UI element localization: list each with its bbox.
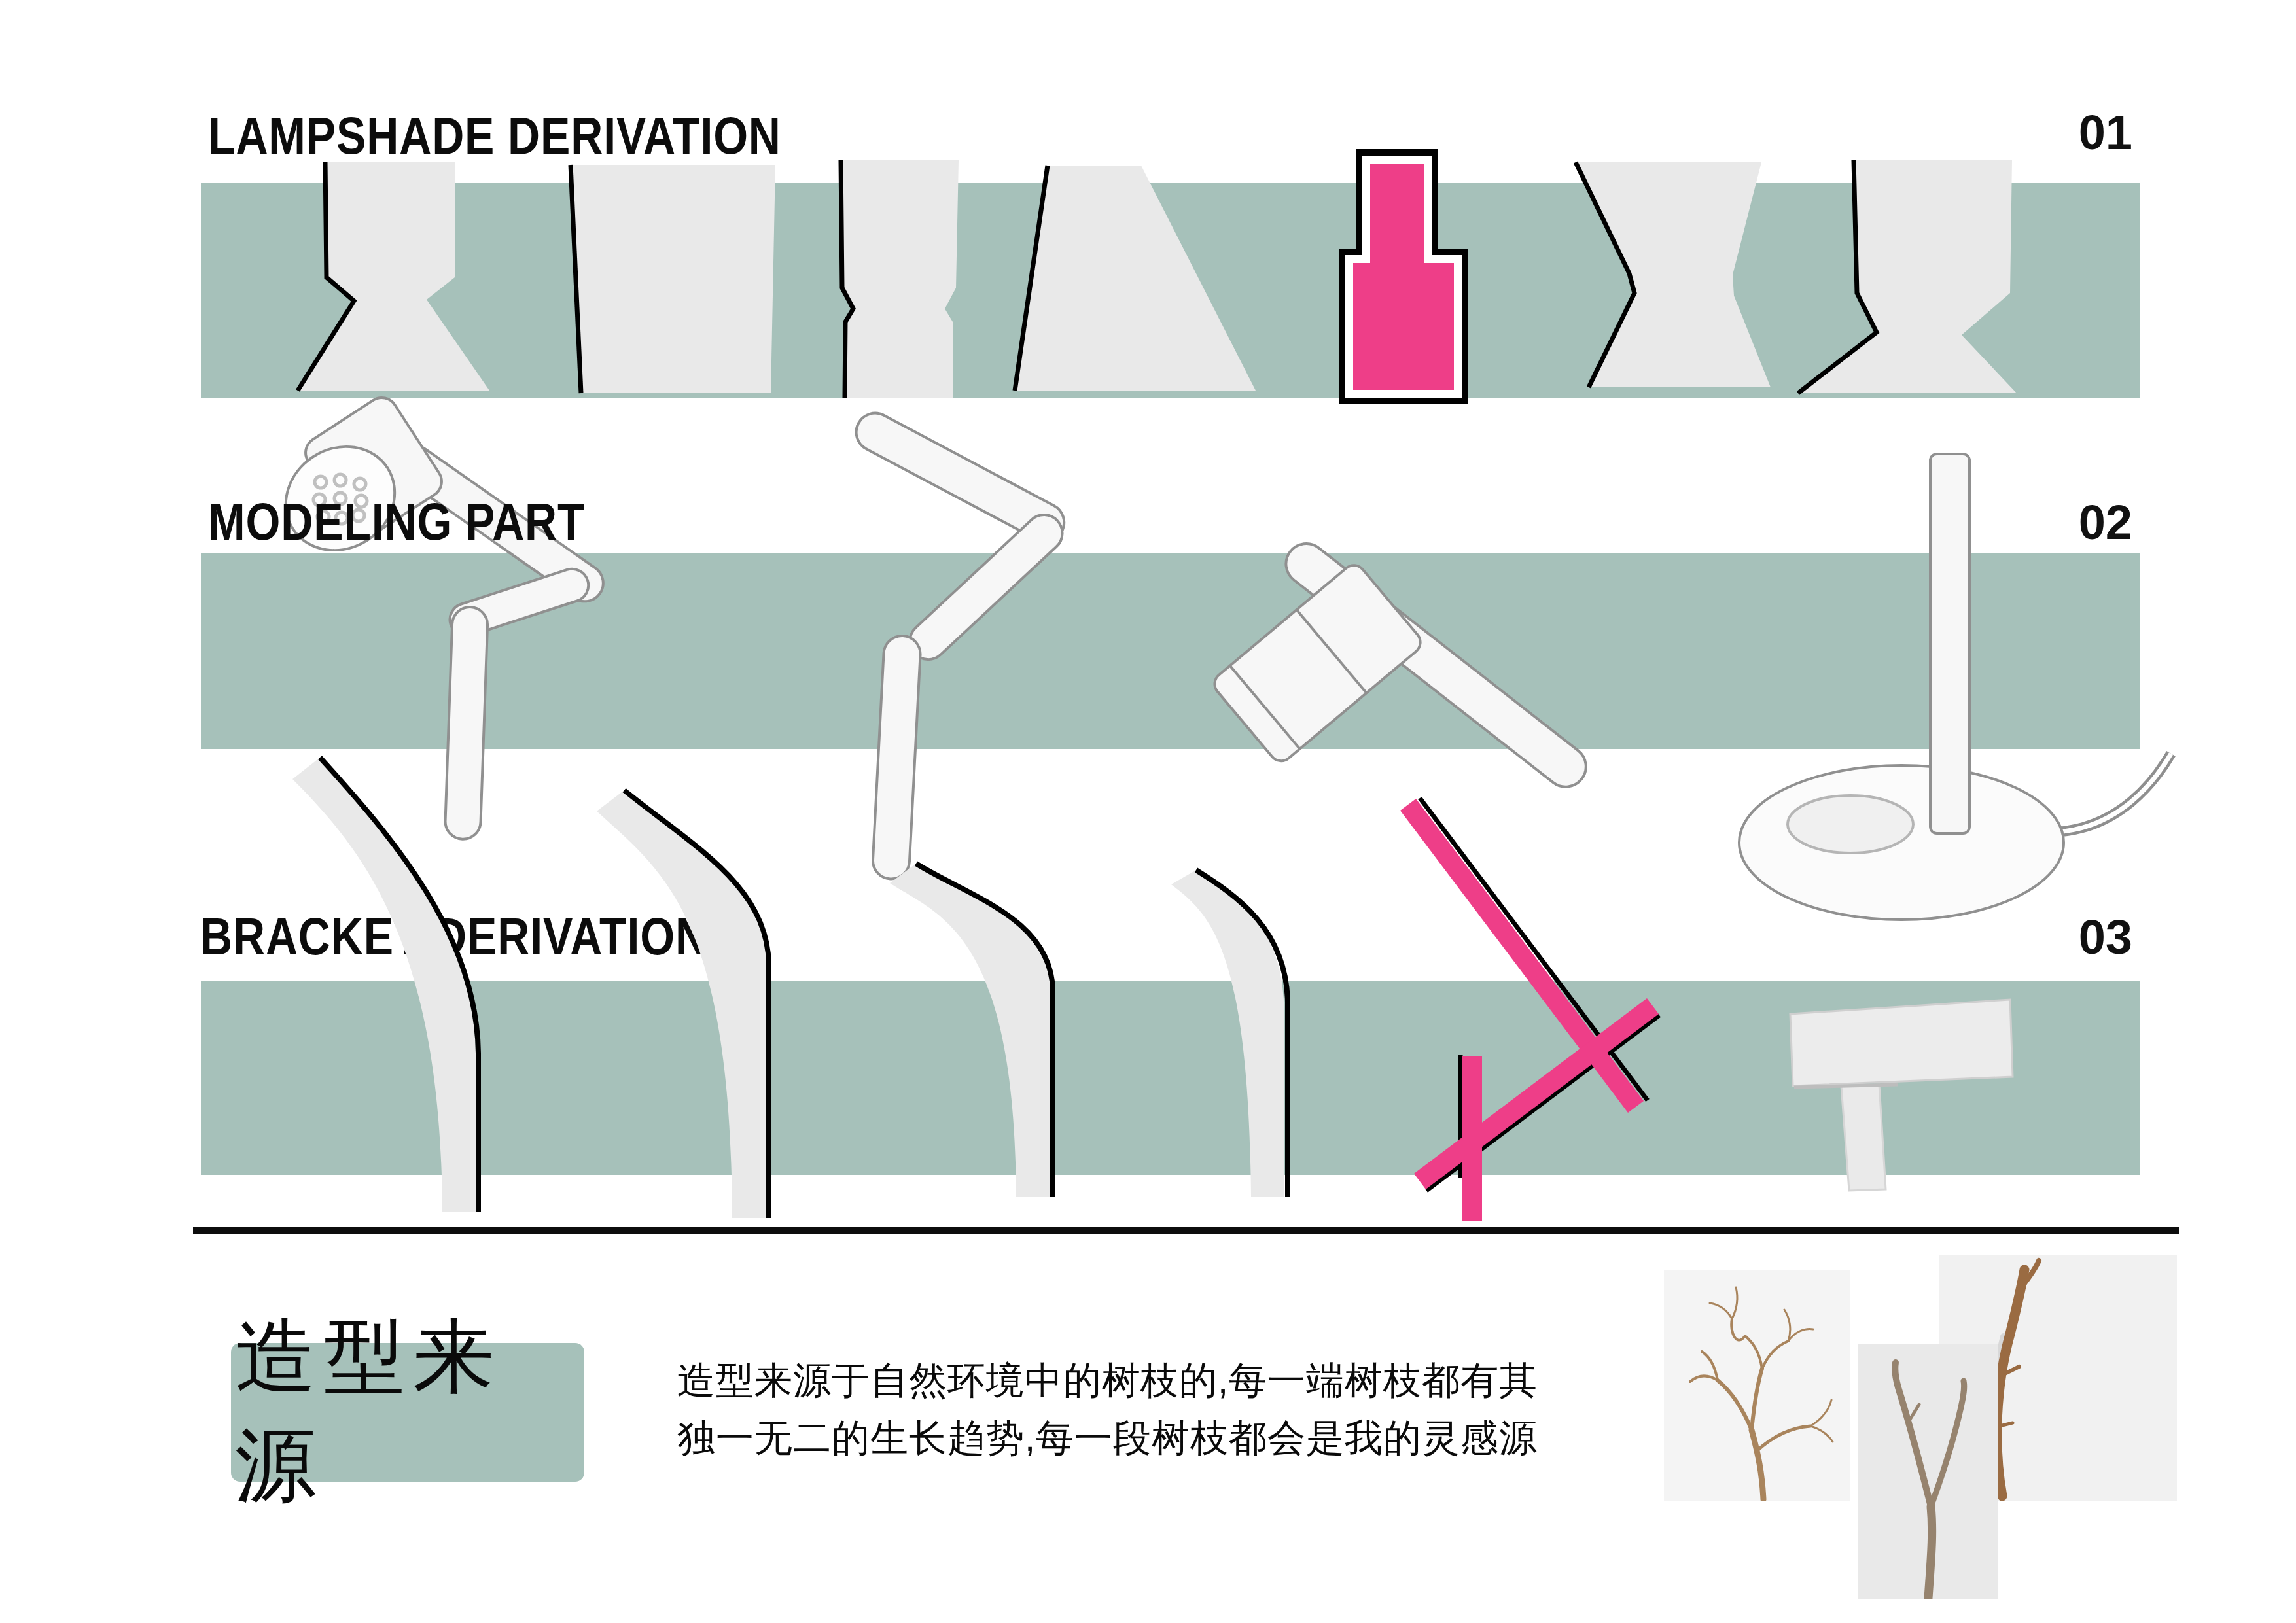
bracket-hook-curve — [597, 790, 769, 1218]
bracket-t-shape — [1790, 1000, 2013, 1191]
bracket-gentle-curve — [1171, 870, 1288, 1197]
bracket-large-curve — [292, 758, 478, 1212]
bracket-highlighted-pink-cross — [1408, 798, 1659, 1221]
design-board: LAMPSHADE DERIVATION 01 MODELING PART 02… — [0, 0, 2296, 1623]
bracket-derivation-art — [0, 0, 2296, 1623]
bracket-shapes — [292, 758, 2013, 1221]
bracket-medium-curve — [890, 864, 1053, 1197]
